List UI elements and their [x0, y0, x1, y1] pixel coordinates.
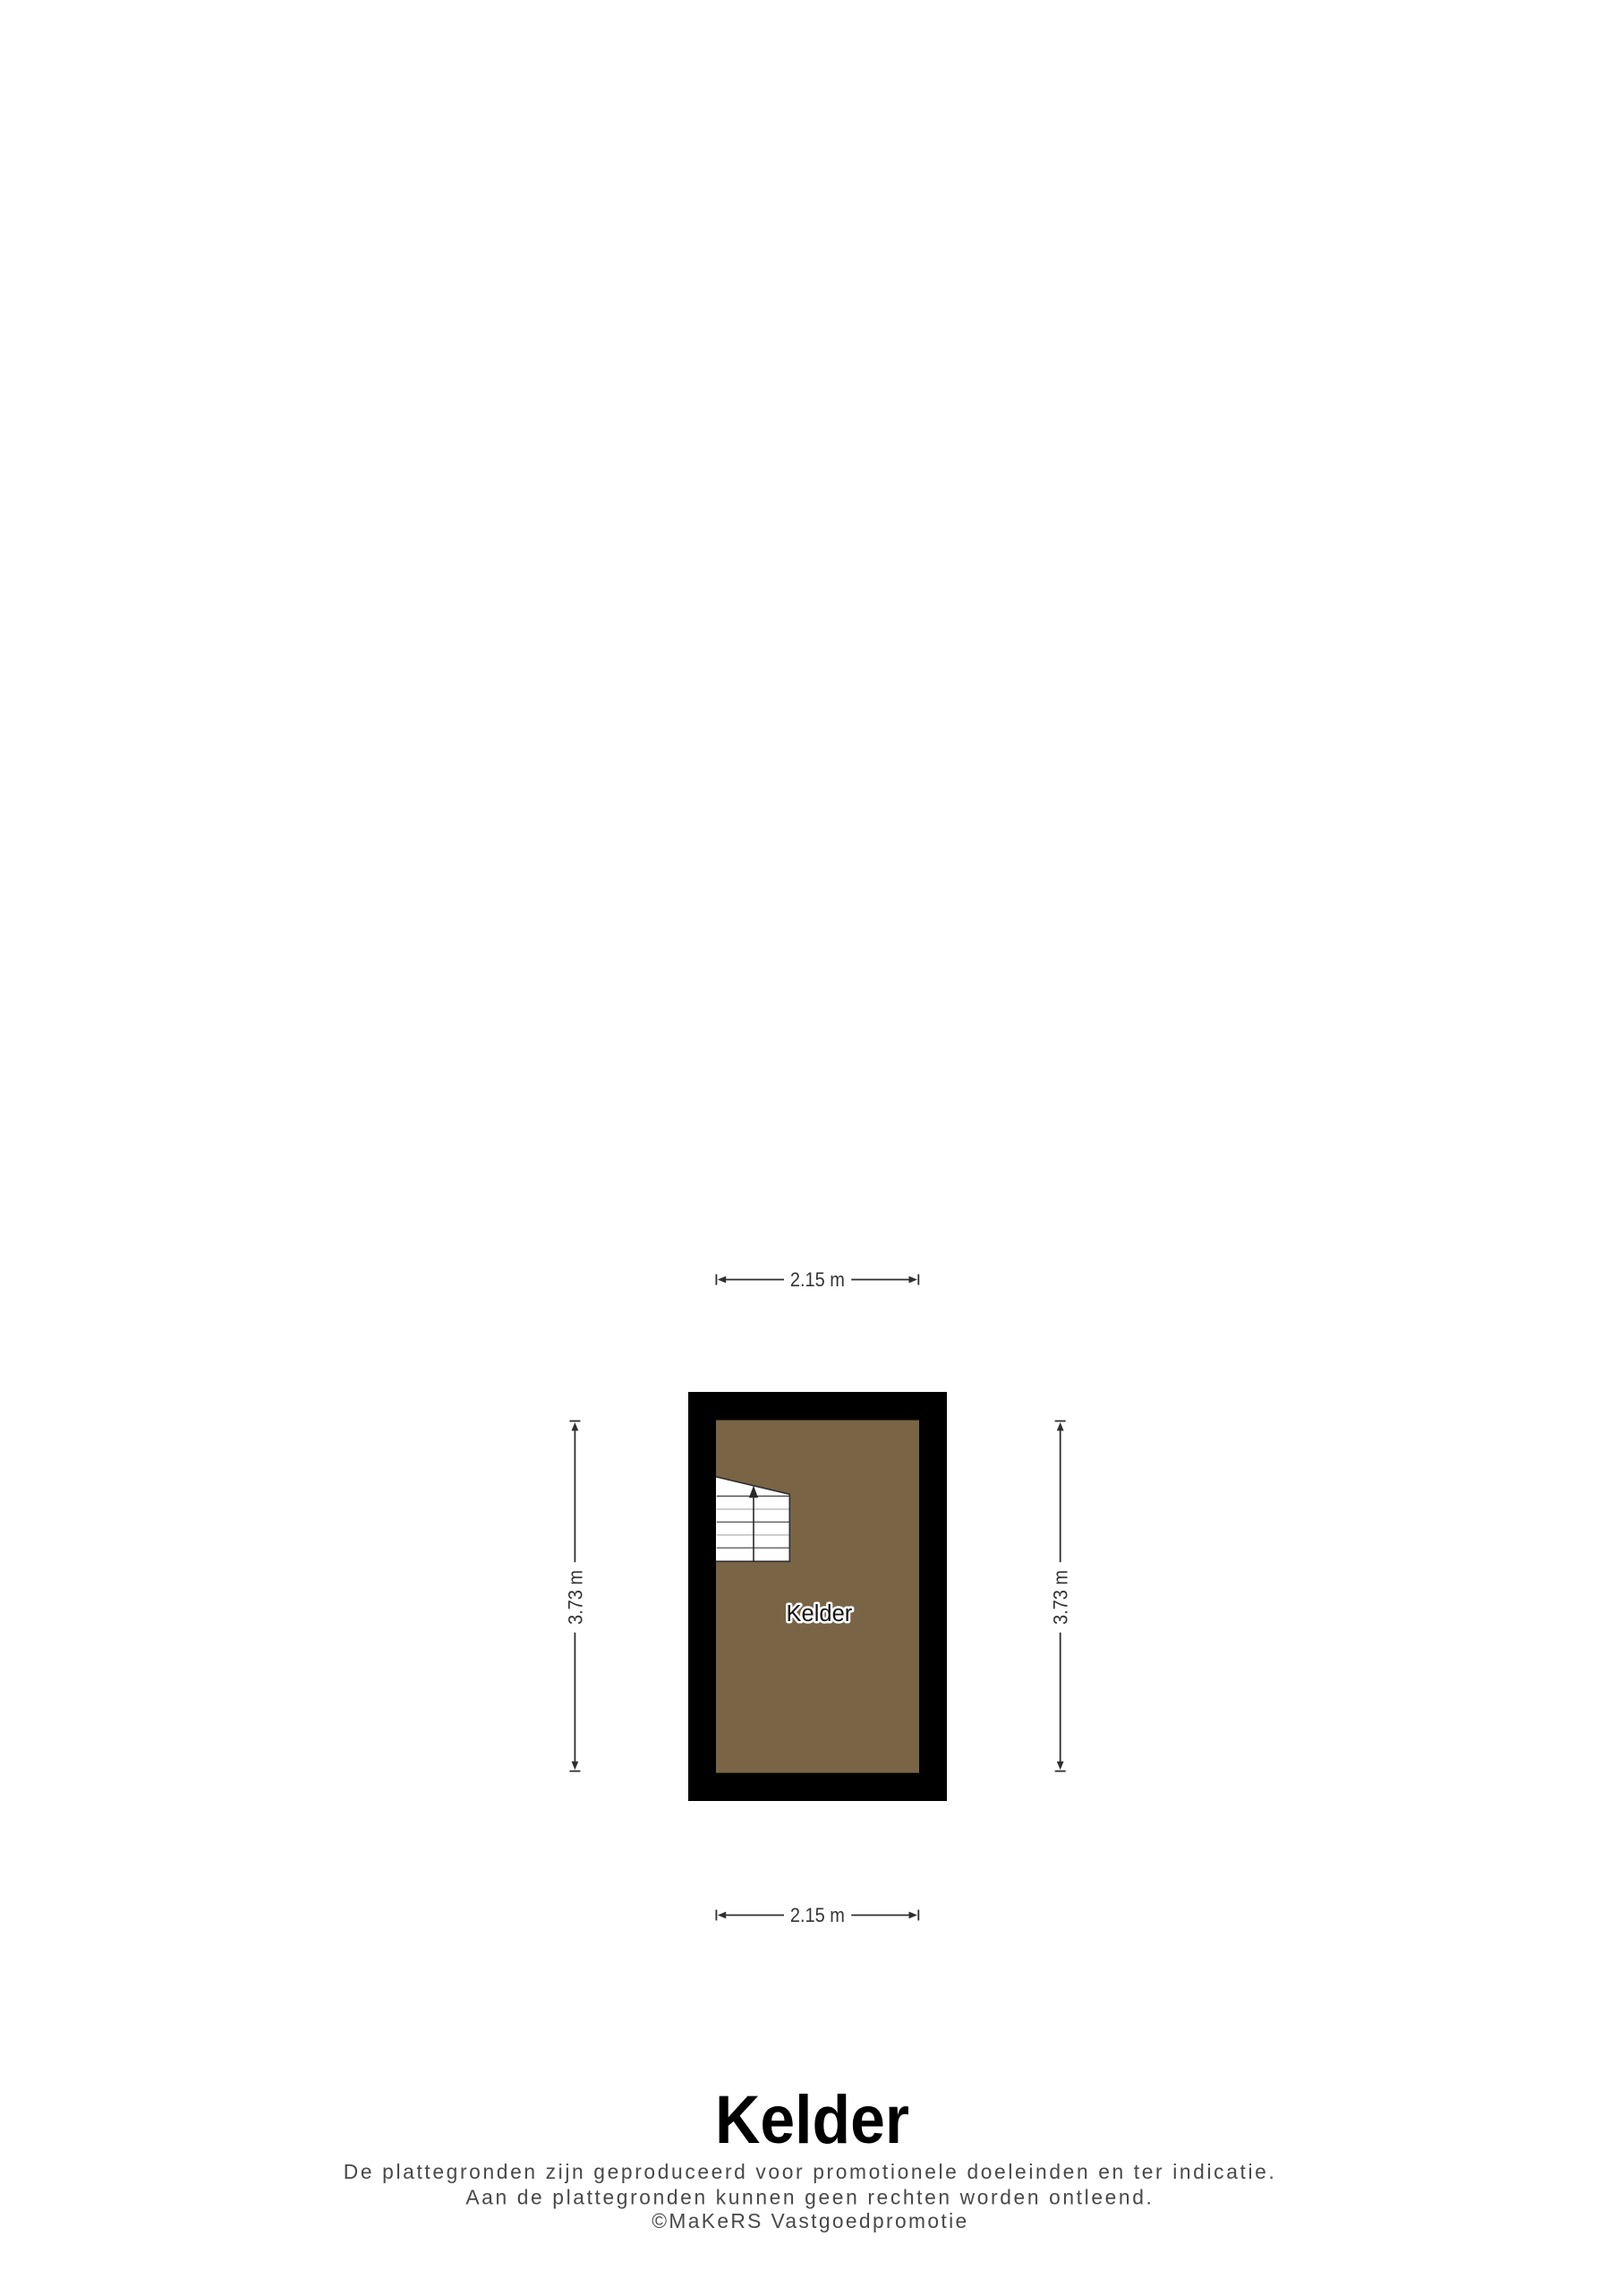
svg-text:Kelder: Kelder — [715, 2082, 909, 2158]
svg-text:3.73 m: 3.73 m — [564, 1570, 586, 1625]
svg-text:Kelder: Kelder — [787, 1601, 853, 1626]
svg-text:3.73 m: 3.73 m — [1050, 1570, 1072, 1625]
svg-text:De plattegronden zijn geproduc: De plattegronden zijn geproduceerd voor … — [344, 2160, 1274, 2183]
svg-text:2.15 m: 2.15 m — [790, 1268, 845, 1291]
svg-text:Aan de plattegronden kunnen ge: Aan de plattegronden kunnen geen rechten… — [465, 2186, 1151, 2209]
svg-text:2.15 m: 2.15 m — [790, 1904, 845, 1926]
